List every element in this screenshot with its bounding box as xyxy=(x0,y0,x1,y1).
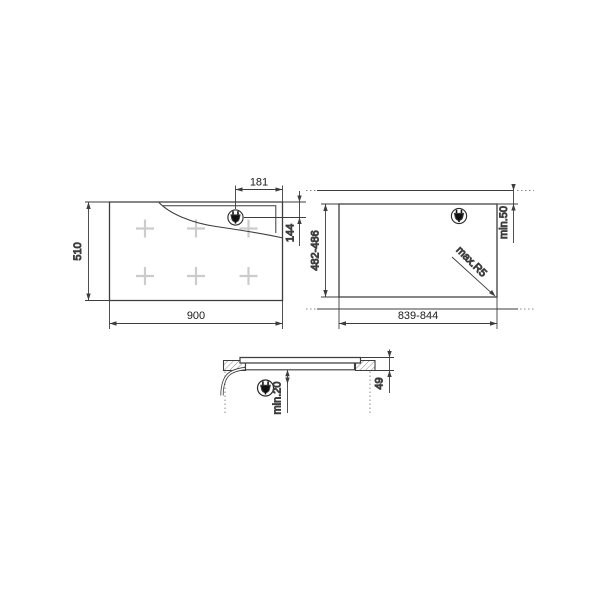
hob-glass-section xyxy=(240,358,361,364)
dim-cutout-width-label: 839-844 xyxy=(398,310,438,322)
power-plug-icon xyxy=(451,208,466,223)
top-view: 181 144 510 900 xyxy=(72,177,306,330)
dim-plug-offset-label: 181 xyxy=(250,177,268,189)
installation-drawing-page: 181 144 510 900 xyxy=(0,0,600,600)
dim-clearance-below-label: min.20 xyxy=(272,381,284,414)
dim-hob-depth-label: 510 xyxy=(72,242,84,260)
power-plug-icon xyxy=(228,210,243,225)
dim-plug-depth-label: 144 xyxy=(285,224,297,242)
cutout-outline xyxy=(339,204,497,297)
dim-hob-width-label: 900 xyxy=(187,310,205,322)
dim-cutout-depth-label: 482-486 xyxy=(310,230,322,270)
section-view: min.20 49 xyxy=(222,350,394,415)
dim-hob-depth xyxy=(85,202,110,301)
installation-drawing: 181 144 510 900 xyxy=(0,0,600,600)
cutout-view: min.50 max.R5 482-486 839-844 xyxy=(306,184,534,329)
hob-outline xyxy=(110,202,283,301)
dim-clearance-below xyxy=(285,370,289,413)
dim-cutout-depth xyxy=(321,204,339,297)
dim-rear-clearance-label: min.50 xyxy=(498,206,510,239)
dim-built-in-depth-label: 49 xyxy=(374,377,386,389)
power-cable xyxy=(222,369,246,396)
